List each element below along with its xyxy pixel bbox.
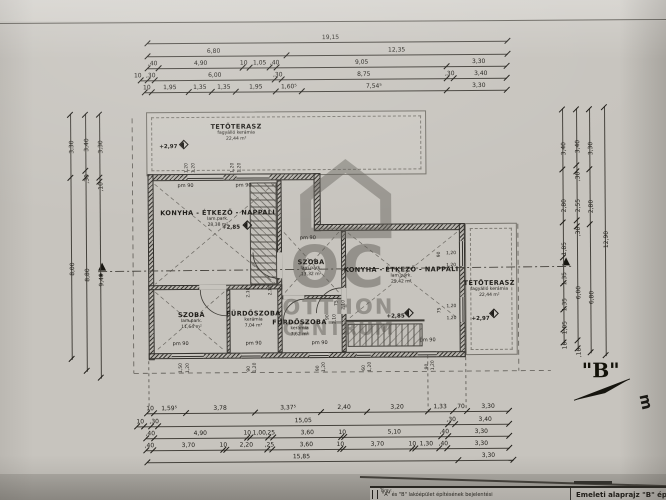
opening-size-label: 1,50	[179, 363, 184, 373]
dimension-label: ,30	[83, 174, 90, 184]
projection-dashes	[149, 355, 466, 412]
room-area: 11,64 m²	[178, 325, 205, 331]
dimension-label: 9,05	[347, 59, 377, 66]
parapet-height-label: pm 90	[300, 235, 316, 241]
dimension-label: 2,55	[575, 199, 582, 212]
room-area: 22,44 m²	[464, 292, 515, 298]
dimension-label: 19,15	[315, 34, 345, 41]
dimension-label: 10	[325, 441, 355, 448]
room-area: 25,42 m²	[344, 279, 459, 285]
opening-size-label: 75	[437, 308, 442, 314]
opening-size-label: 2,10	[268, 285, 273, 295]
drawing-area: OC OTTHON CENTRUM 19,156,8012,35,404,901…	[0, 0, 666, 500]
dimension-label: ,30	[139, 418, 169, 425]
opening-size-label: 1,20	[184, 163, 189, 173]
opening-size-label: 2,10	[332, 314, 337, 324]
dimension-label: 3,40	[560, 142, 567, 155]
dimension-label: 3,30	[68, 140, 75, 153]
dimension-label: 1,95	[241, 83, 271, 90]
dimension-label: 3,30	[473, 452, 503, 459]
dimension-label: 3,30	[464, 82, 494, 89]
dimension-label: ,40	[260, 59, 290, 66]
dimension-label: 1,59⁵	[154, 405, 184, 412]
opening-size-label: 90	[247, 366, 252, 372]
dimension-label: ,40	[428, 440, 458, 447]
opening-size-label: 1,20	[322, 362, 327, 372]
parapet-height-label: pm 90	[246, 341, 262, 347]
opening-size-label: 60	[362, 365, 367, 371]
opening-size-label: 90	[325, 314, 330, 320]
title-block-divider	[570, 488, 571, 500]
opening-size-label: 1,20	[446, 251, 456, 256]
title-block-header-bar	[574, 481, 612, 484]
dimension-label: 10	[562, 342, 569, 350]
parapet-height-label: pm 90	[178, 183, 194, 189]
dimension-label: 2,80	[588, 200, 595, 213]
dimension-label: ,40	[429, 428, 459, 435]
dimension-label: 2,80	[561, 199, 568, 212]
dimension-label: ,25	[255, 429, 285, 436]
opening-size-label: 1,20	[253, 362, 258, 372]
level-height-label: +2,85	[386, 314, 404, 320]
dimension-label: 3,30	[464, 58, 494, 65]
dimension-label: 3,40	[466, 70, 496, 77]
dimension-label: 3,40	[83, 138, 90, 151]
parapet-height-label: pm 90	[312, 340, 328, 346]
opening-size-label: 90	[316, 365, 321, 371]
dimension-label: 6,00	[575, 286, 582, 299]
dimension-label: 1,35	[209, 84, 239, 91]
dimension-label: 6,80	[588, 291, 595, 304]
dimension-label: 12,35	[382, 46, 412, 53]
title-block-drawing-name: Emeleti alaprajz "B" épü	[576, 491, 666, 499]
dimension-label: 4,90	[185, 430, 215, 437]
level-height-label: +2,97	[159, 144, 177, 150]
dimension-label: 1,35	[561, 272, 568, 285]
opening-size-label: 1,20	[446, 316, 456, 321]
dimension-label: ,30	[435, 70, 465, 77]
dimension-label: 3,70	[362, 441, 392, 448]
dimension-label: ,25	[254, 441, 284, 448]
room-label: SZOBAlam.park.11,64 m²	[178, 311, 205, 331]
room-label: TETŐTERASZfagyálló kerámia22,44 m²	[211, 122, 262, 142]
opening-size-label: 2,10	[246, 288, 251, 298]
scanned-floor-plan-photo: OC OTTHON CENTRUM 19,156,8012,35,404,901…	[0, 0, 666, 500]
dimension-label: ,70	[445, 403, 475, 410]
opening-size-label: 1,20	[446, 304, 456, 309]
dimension-label: 3,78	[205, 405, 235, 412]
dimension-label: ,30	[136, 72, 166, 79]
dimension-label: 7,54⁵	[359, 83, 389, 90]
dimension-label: 1,60⁵	[274, 83, 304, 90]
room-label: FÜRDŐSZOBAkerámia7,62 m²	[272, 318, 327, 338]
dimension-label: ,10	[576, 348, 583, 358]
opening-size-label: 1,20	[431, 360, 436, 370]
dimension-label: 15,05	[288, 417, 318, 424]
dimension-label: 3,40	[470, 416, 500, 423]
section-marker-b-label: "B"	[582, 358, 620, 382]
room-label: TETŐTERASZfagyálló kerámia22,44 m²	[464, 279, 515, 299]
level-height-label: +2,97	[471, 316, 489, 322]
dimension-label: 3,60	[292, 429, 322, 436]
parapet-height-label: pm 90	[173, 341, 189, 347]
opening-size-label: 90	[425, 364, 430, 370]
dimension-label: ,40	[134, 442, 164, 449]
dimension-label: 10	[327, 429, 357, 436]
dimension-label: 1,05	[562, 321, 569, 334]
dimension-label: 3,70	[173, 442, 203, 449]
dimension-label: ,30	[575, 227, 582, 237]
title-block-subject: "A" és "B" lakóépület építésének bejelen…	[382, 492, 493, 498]
section-line-a	[98, 266, 574, 271]
dimension-label: 8,80	[84, 268, 91, 281]
opening-size-label: 1,20	[230, 163, 235, 173]
dimension-label: 8,00	[69, 262, 76, 275]
dimension-label: 2,40	[329, 404, 359, 411]
opening-size-label: 1,20	[237, 163, 242, 173]
title-block-corner-mark	[372, 490, 378, 499]
dimension-label: 3,30	[466, 428, 496, 435]
dimension-label: ,10	[98, 182, 105, 192]
section-marker-a-label: A	[99, 274, 103, 279]
room-label: KONYHA - ÉTKEZŐ - NAPPALIlam.park.28,38 …	[160, 208, 275, 228]
room-label: SZOBAlam.park.13,32 m²	[298, 258, 325, 278]
dimension-label: 3,40	[574, 140, 581, 153]
dimension-label: 6,00	[200, 72, 230, 79]
dimension-label: 1,95	[155, 84, 185, 91]
opening-size-label: 90	[437, 252, 442, 258]
dimension-label: 12,90	[603, 231, 610, 248]
opening-size-label: 1,20	[186, 363, 191, 373]
dimension-label: 6,80	[199, 48, 229, 55]
dimension-label: 15,85	[286, 453, 316, 460]
opening-size-label: 1,20	[191, 163, 196, 173]
parapet-height-label: pm 90	[420, 337, 436, 343]
title-block: Tárgy: "A" és "B" lakóépület építésének …	[370, 486, 666, 500]
dimension-label: ,40	[135, 430, 165, 437]
dimension-label: 5,10	[379, 428, 409, 435]
opening-size-label: 1,20	[368, 362, 373, 372]
dimension-label: 3,30	[587, 142, 594, 155]
roof-outline-dashes	[132, 115, 551, 373]
dimension-label: 3,30	[466, 440, 496, 447]
dimension-label: 1,85	[561, 242, 568, 255]
house-watermark-icon	[305, 166, 385, 234]
dimension-label: 3,30	[97, 140, 104, 153]
dimension-label: ,30	[263, 71, 293, 78]
room-area: 7,62 m²	[272, 332, 327, 338]
room-label: KONYHA - ÉTKEZŐ - NAPPALIlam.park.25,42 …	[344, 265, 459, 285]
dimension-label: 3,60	[291, 441, 321, 448]
dimension-label: 3,30	[473, 403, 503, 410]
dimension-label: 3,37⁵	[273, 404, 303, 411]
parapet-height-label: pm 90	[236, 183, 252, 189]
dimension-label: 1,35	[561, 298, 568, 311]
dimension-label: 3,20	[382, 403, 412, 410]
dimension-label: 8,75	[349, 71, 379, 78]
room-area: 13,32 m²	[298, 272, 325, 278]
dimension-label: 4,90	[186, 60, 216, 67]
room-area: 28,38 m²	[160, 222, 275, 228]
dimension-label: ,30	[436, 416, 466, 423]
room-area: 22,44 m²	[211, 136, 262, 142]
level-height-label: +2,85	[222, 225, 240, 231]
dimension-label: ,30	[574, 172, 581, 182]
opening-size-label: 75	[334, 300, 339, 306]
opening-size-label: 1,20	[446, 263, 456, 268]
opening-size-label: 2,10	[341, 300, 346, 310]
dimension-label: ,40	[138, 60, 168, 67]
